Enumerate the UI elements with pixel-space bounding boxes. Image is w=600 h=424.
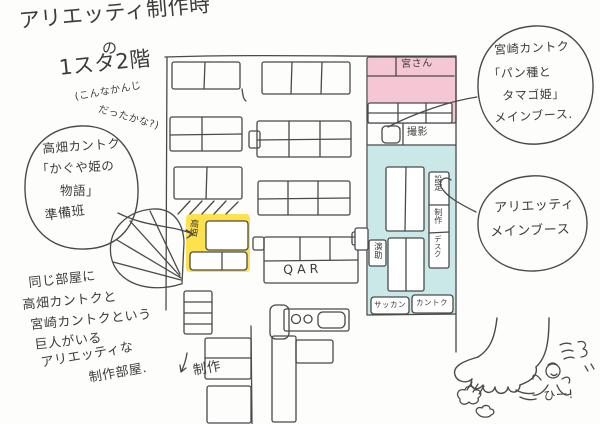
bottom-note-line3: 宮崎カントクという <box>30 308 152 333</box>
strip-label-1: 設定 <box>433 175 442 191</box>
director-label: カントク <box>416 299 448 307</box>
miyazaki-bubble-line1: 宮崎カントク <box>494 40 570 57</box>
takahata-bubble-line1: 高畑カントク <box>42 137 121 156</box>
middle-desk-column <box>249 62 364 283</box>
takahata-bubble-line4: 準備班 <box>44 204 86 224</box>
miyazaki-bubble-line2: 「パン種と <box>488 66 552 81</box>
bottom-note-line6: 制作部屋. <box>88 362 148 386</box>
miyazaki-room-label: 宮さん <box>401 58 433 70</box>
page-title-line1: アリエッティ制作時 <box>18 0 212 33</box>
takahata-bubble-line2: 「かぐや姫の <box>36 159 115 177</box>
strip-label-3: デスク <box>433 235 441 258</box>
bottom-note-line1: 同じ部屋に <box>28 270 97 291</box>
miyazaki-bubble-line4: メインブース. <box>494 108 573 125</box>
arrietty-booth-area <box>368 145 456 315</box>
title-note-line1: (こんなかんじ <box>74 80 142 103</box>
exclamation-text: ひー! <box>543 388 574 403</box>
arrietty-bubble-line2: メインブース <box>490 223 570 240</box>
miyazaki-bubble-line3: タマゴ姫」 <box>502 88 565 103</box>
strip-label-2: 制作 <box>433 208 442 224</box>
dust-clouds <box>458 382 494 417</box>
takahata-desk-label: 高畑 <box>185 218 197 237</box>
photography-label: 撮影 <box>407 127 428 138</box>
giant-foot-drawing <box>455 318 549 400</box>
takahata-bubble-line3: 物語」 <box>60 184 99 198</box>
qar-label: QAR <box>283 262 323 277</box>
title-note-line2: だったかな?) <box>97 104 160 132</box>
hatch-marks <box>178 201 238 214</box>
page-title-line2: 1スタ2階 <box>58 47 152 80</box>
left-desk-column <box>170 62 246 214</box>
animation-director-label: サッカン <box>374 301 406 309</box>
production-desks <box>180 338 251 423</box>
production-label: 制作 <box>192 359 222 378</box>
assistant-director-label: 演助 <box>372 242 381 259</box>
kitchen-counter <box>270 305 349 422</box>
motion-squiggle <box>578 342 587 357</box>
motion-lines <box>560 343 574 359</box>
production-arrow <box>180 353 187 372</box>
bottom-note-line2: 高畑カントクと <box>22 291 117 313</box>
arrietty-bubble-line1: アリエッティ <box>494 198 575 216</box>
hand-drawn-floorplan-sketch: アリエッティ制作時 の 1スタ2階 (こんなかんじ だったかな?) 高畑カントク… <box>0 0 600 424</box>
